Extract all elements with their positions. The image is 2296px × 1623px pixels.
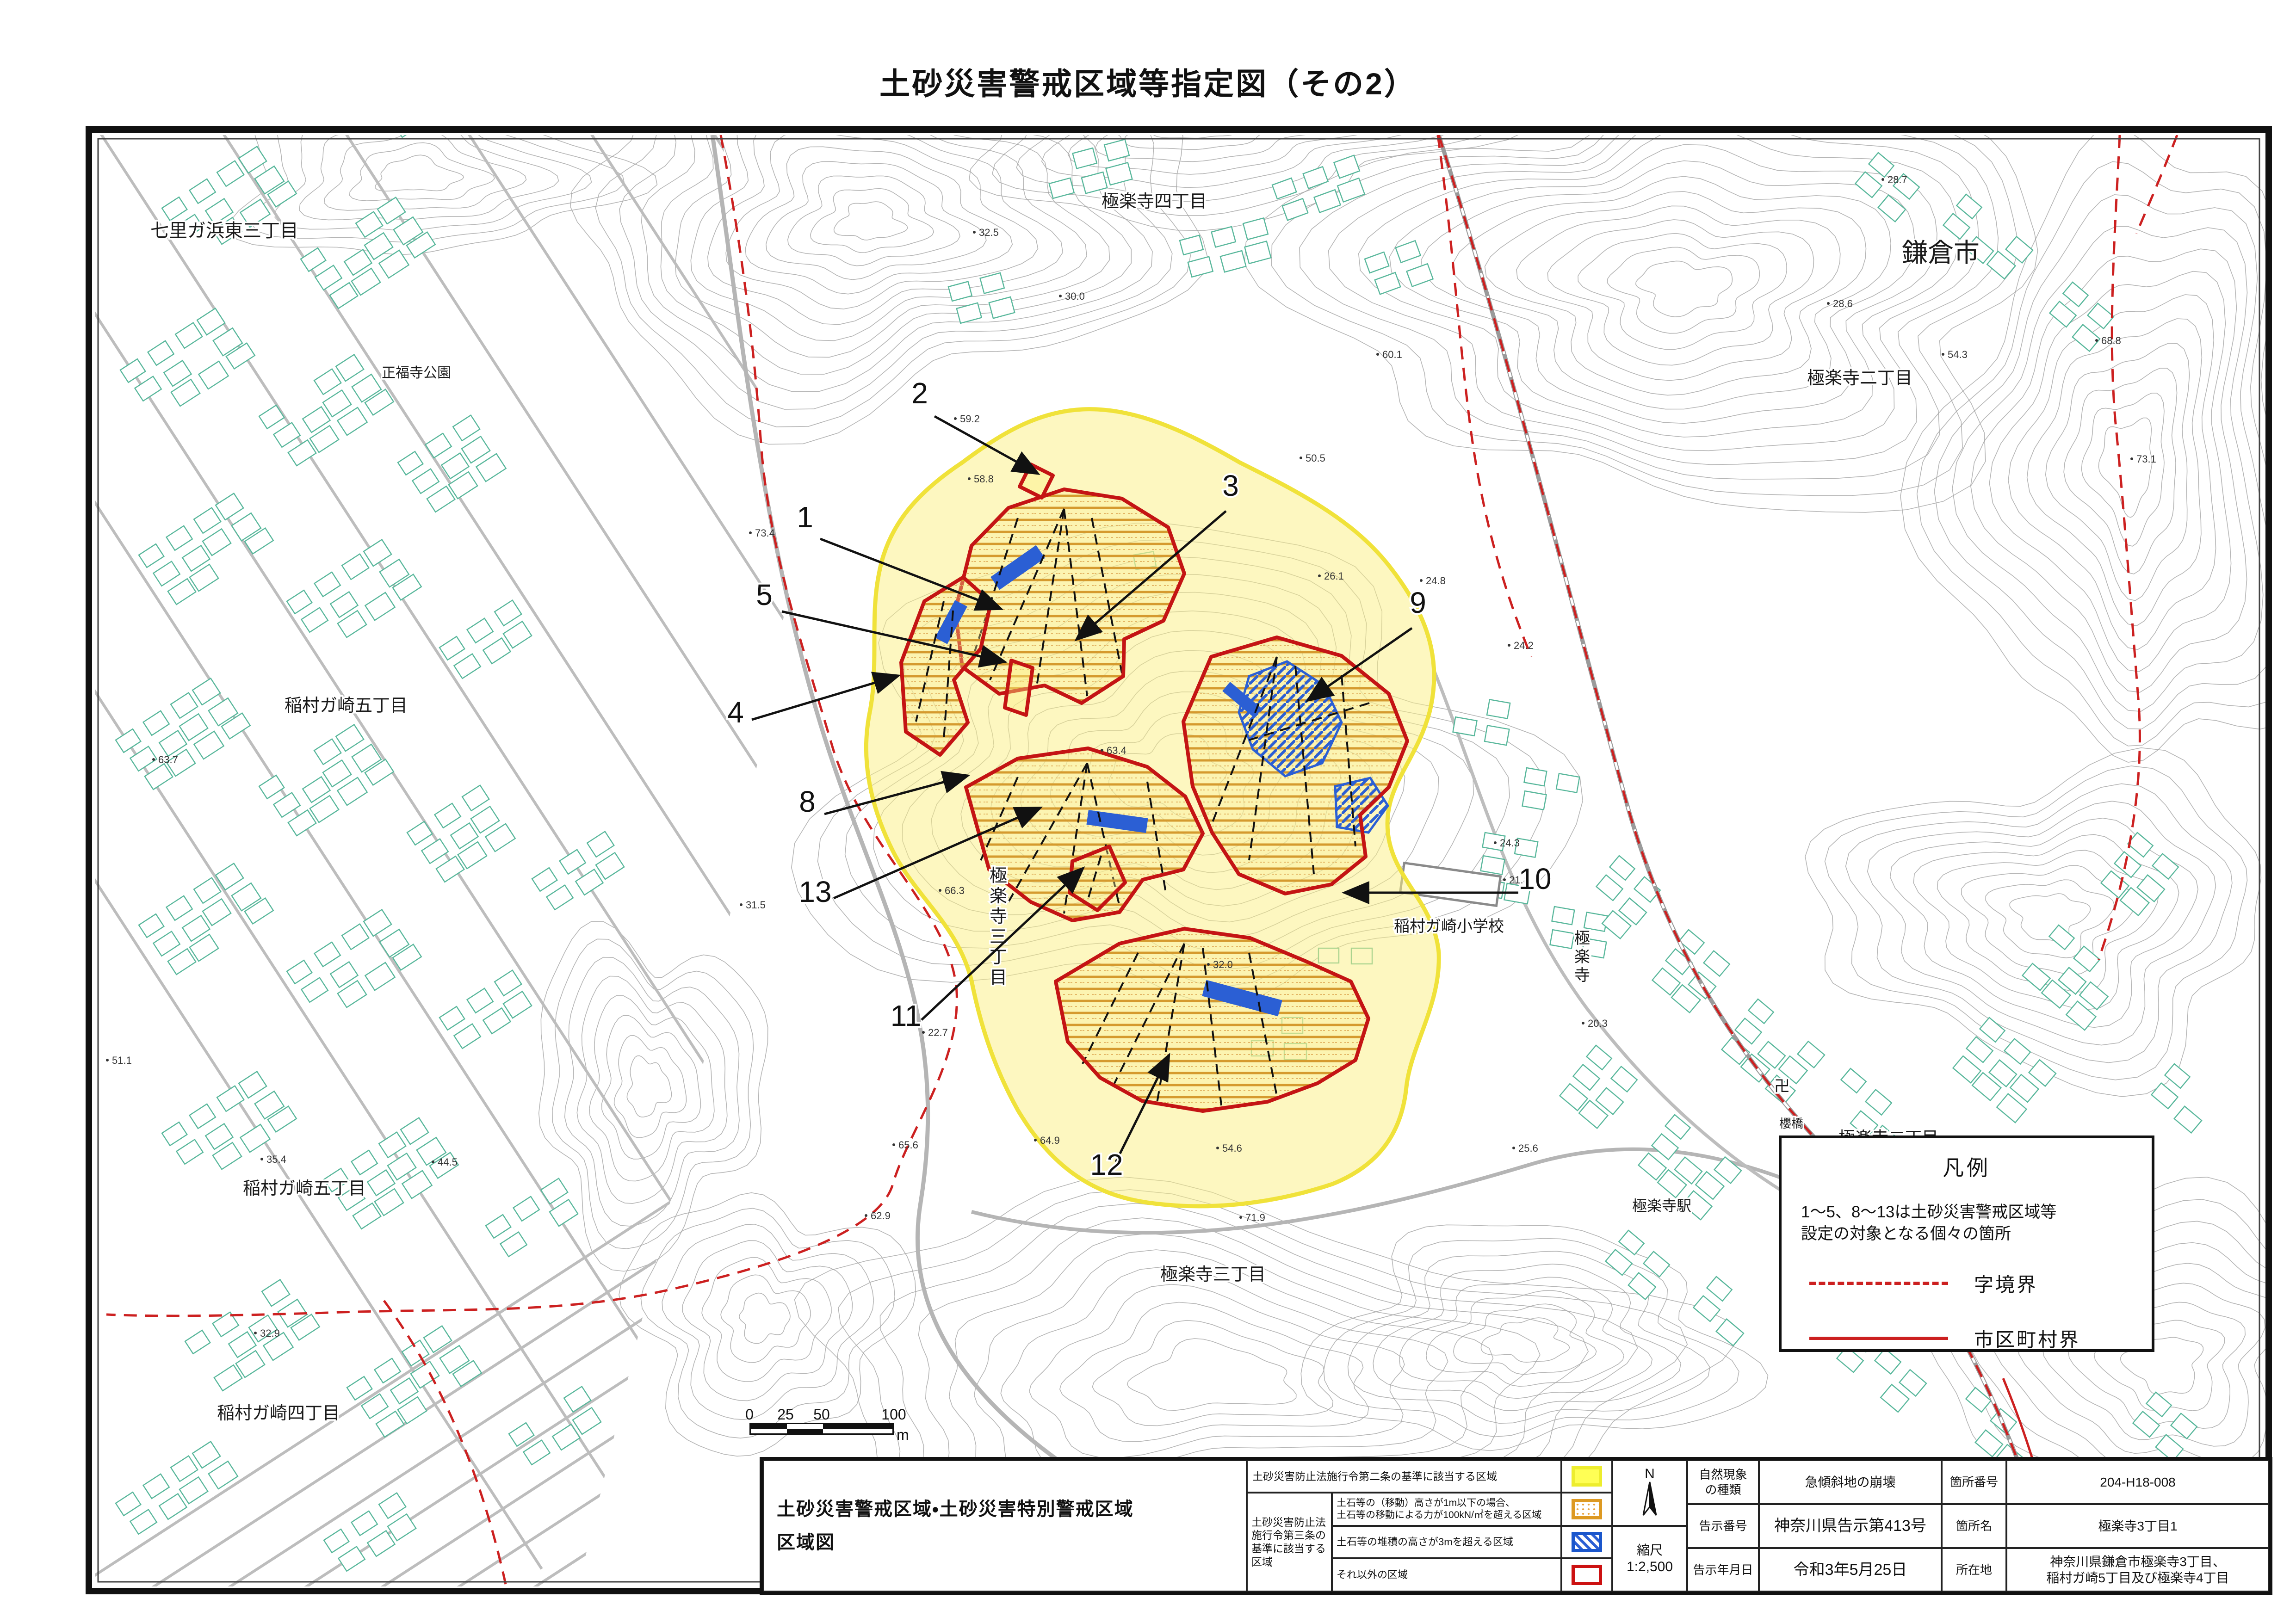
spot-elevation-dot [1494, 841, 1497, 844]
place-label: 極 [990, 866, 1007, 886]
spot-elevation-dot [1059, 295, 1062, 297]
place-label: 櫻橋 [1779, 1117, 1803, 1130]
swatch-cell-yellow [1561, 1460, 1612, 1493]
site-number-label: 11 [891, 999, 921, 1032]
spot-elevation-value: 73.1 [2136, 453, 2156, 465]
spot-elevation-dot [1216, 1147, 1219, 1149]
spot-elevation-dot [922, 1031, 925, 1034]
spot-elevation-value: 51.1 [112, 1055, 132, 1066]
scale-bar: 0 25 50 100 m [746, 1406, 940, 1457]
place-label: 稲村ガ崎五丁目 [285, 696, 408, 716]
scale-bar-unit: m [897, 1426, 909, 1444]
place-label: 鎌倉市 [1902, 238, 1980, 267]
spot-elevation-value: 24.2 [1514, 640, 1534, 651]
spot-elevation-dot [1300, 457, 1302, 459]
scale-cell: 縮尺 1:2,500 [1612, 1526, 1687, 1592]
zone-article3-label: 土砂災害防止法施行令第三条の基準に該当する区域 [1247, 1493, 1332, 1592]
spot-elevation-value: 50.5 [1306, 452, 1325, 464]
spot-elevation-dot [968, 477, 971, 480]
site-number-label: 13 [798, 875, 831, 908]
spot-elevation-value: 63.4 [1107, 745, 1126, 756]
solid-line-icon [1809, 1337, 1948, 1340]
spot-elevation-value: 68.8 [2101, 335, 2121, 346]
place-label: 楽 [990, 887, 1007, 906]
spot-elevation-value: 54.3 [1948, 349, 1968, 360]
swatch-cell-red [1561, 1558, 1612, 1592]
spot-elevation-value: 54.6 [1222, 1142, 1242, 1154]
spot-elevation-dot [106, 1059, 109, 1061]
spot-elevation-dot [749, 531, 752, 534]
detail-label: 箇所名 [1942, 1504, 2006, 1548]
spot-elevation-dot [2130, 457, 2133, 460]
place-label: 正福寺公園 [382, 365, 451, 381]
place-label: 極 [1574, 930, 1590, 947]
spot-elevation-value: 31.5 [746, 899, 766, 911]
site-number-label: 12 [1090, 1148, 1123, 1181]
spot-elevation-dot [892, 1143, 895, 1146]
site-number-label: 3 [1222, 469, 1239, 502]
spot-elevation-dot [954, 417, 957, 420]
place-label: 極楽寺四丁目 [1102, 192, 1207, 211]
place-label: 稲村ガ崎五丁目 [243, 1179, 366, 1198]
map-canvas: 59.273.458.850.526.124.824.224.321.820.3… [0, 0, 2296, 1623]
detail-value: 極楽寺3丁目1 [2006, 1504, 2269, 1548]
zone-row-other-label: それ以外の区域 [1332, 1558, 1561, 1592]
spot-elevation-value: 35.4 [266, 1154, 286, 1165]
legend-note: 1〜5、8〜13は土砂災害警戒区域等 設定の対象となる個々の箇所 [1801, 1201, 2138, 1245]
place-label: 稲村ガ崎四丁目 [217, 1404, 340, 1423]
page: { "title": "土砂災害警戒区域等指定図（その2）", "colors"… [0, 0, 2296, 1623]
zone-row-article2-label: 土砂災害防止法施行令第二条の基準に該当する区域 [1247, 1460, 1561, 1493]
swatch-cell-orange [1561, 1493, 1612, 1526]
spot-elevation-dot [1503, 878, 1506, 881]
detail-value: 204-H18-008 [2006, 1460, 2269, 1504]
place-label: 寺 [990, 907, 1007, 926]
spot-elevation-value: 59.2 [960, 413, 980, 425]
spot-elevation-dot [254, 1332, 257, 1334]
spot-elevation-value: 24.8 [1426, 575, 1446, 586]
site-number-label: 5 [756, 578, 773, 611]
north-arrow-icon: N [1634, 1465, 1666, 1521]
detail-label: 所在地 [1942, 1548, 2006, 1592]
north-arrow-cell: N [1612, 1460, 1687, 1526]
spot-elevation-dot [939, 889, 941, 892]
spot-elevation-value: 24.3 [1500, 837, 1520, 849]
swatch-cell-blue [1561, 1526, 1612, 1558]
warning-zone-swatch-icon [1572, 1466, 1602, 1487]
detail-label: 自然現象 の種類 [1687, 1460, 1759, 1504]
place-label: 楽 [1574, 948, 1590, 966]
legend-box: 凡例 1〜5、8〜13は土砂災害警戒区域等 設定の対象となる個々の箇所 字境界 … [1779, 1135, 2154, 1352]
detail-value: 神奈川県鎌倉市極楽寺3丁目、 稲村ガ崎5丁目及び極楽寺4丁目 [2006, 1548, 2269, 1592]
spot-elevation-dot [1512, 1147, 1515, 1149]
spot-elevation-value: 62.9 [871, 1210, 891, 1222]
page-title: 土砂災害警戒区域等指定図（その2） [879, 59, 1417, 104]
place-label: 極楽寺駅 [1632, 1197, 1691, 1214]
spot-elevation-dot [1318, 574, 1321, 577]
spot-elevation-dot [1207, 963, 1210, 966]
map-doc-title: 土砂災害警戒区域・土砂災害特別警戒区域 区域図 [764, 1493, 1134, 1559]
spot-elevation-dot [1827, 302, 1830, 305]
spot-elevation-dot [152, 758, 155, 761]
place-label: 目 [990, 968, 1007, 987]
place-label: 寺 [1574, 967, 1590, 984]
spot-elevation-dot [1101, 749, 1103, 752]
site-number-label: 1 [797, 500, 813, 534]
spot-elevation-value: 20.3 [1588, 1018, 1608, 1029]
spot-elevation-dot [260, 1158, 263, 1160]
place-label: 七里ガ浜東三丁目 [150, 221, 298, 241]
legend-title: 凡例 [1782, 1151, 2152, 1182]
spot-elevation-value: 28.7 [1888, 174, 1907, 185]
zone-row-deposit-label: 土石等の堆積の高さが3mを超える区域 [1332, 1526, 1561, 1558]
scale-bar-ticks: 0 25 50 100 [746, 1406, 940, 1423]
scale-bar-graphic [749, 1423, 894, 1435]
spot-elevation-dot [1881, 178, 1884, 181]
place-label: 丁 [990, 948, 1007, 967]
spot-elevation-dot [1239, 1216, 1242, 1219]
spot-elevation-value: 44.5 [438, 1156, 458, 1168]
site-number-label: 9 [1410, 586, 1426, 619]
legend-item-municipal-boundary: 市区町村界 [1809, 1324, 2152, 1352]
spot-elevation-value: 25.6 [1518, 1142, 1538, 1154]
detail-value: 神奈川県告示第413号 [1759, 1504, 1942, 1548]
detail-value: 急傾斜地の崩壊 [1759, 1460, 1942, 1504]
spot-elevation-value: 32.5 [979, 227, 999, 238]
site-number-label: 4 [727, 696, 744, 729]
spot-elevation-dot [1420, 579, 1423, 582]
spot-elevation-dot [1942, 353, 1944, 356]
spot-elevation-value: 28.6 [1833, 298, 1853, 309]
debris-force-swatch-icon [1572, 1499, 1602, 1519]
place-label: 極楽寺二丁目 [1807, 369, 1912, 388]
spot-elevation-value: 73.4 [755, 527, 775, 539]
spot-elevation-dot [2095, 339, 2098, 342]
spot-elevation-value: 32.0 [1213, 959, 1233, 970]
spot-elevation-value: 26.1 [1324, 570, 1344, 582]
spot-elevation-value: 71.9 [1245, 1212, 1265, 1223]
spot-elevation-value: 30.0 [1065, 290, 1085, 302]
legend-item-aza-boundary: 字境界 [1809, 1269, 2152, 1297]
place-label: 稲村ガ崎小学校 [1394, 918, 1504, 935]
detail-label: 箇所番号 [1942, 1460, 2006, 1504]
spot-elevation-dot [1376, 353, 1379, 356]
spot-elevation-dot [740, 903, 743, 906]
spot-elevation-value: 60.1 [1382, 349, 1402, 360]
site-number-label: 8 [799, 785, 816, 818]
dashed-line-icon [1809, 1282, 1948, 1285]
place-label: 三 [990, 927, 1007, 947]
spot-elevation-dot [1582, 1022, 1584, 1024]
spot-elevation-value: 65.6 [898, 1139, 918, 1151]
spot-elevation-dot [973, 231, 976, 234]
detail-label: 告示年月日 [1687, 1548, 1759, 1592]
spot-elevation-value: 32.9 [260, 1327, 280, 1339]
deposit-swatch-icon [1572, 1532, 1602, 1552]
site-number-label: 10 [1518, 862, 1551, 895]
detail-value: 令和3年5月25日 [1759, 1548, 1942, 1592]
zone-row-move-label: 土石等の（移動）高さが1m以下の場合、 土石等の移動による力が100kN/㎡を超… [1332, 1493, 1561, 1526]
site-number-label: 2 [911, 376, 928, 410]
spot-elevation-dot [1034, 1139, 1037, 1142]
place-label: 卍 [1774, 1078, 1790, 1095]
place-label: 極楽寺三丁目 [1160, 1265, 1266, 1284]
spot-elevation-value: 58.8 [974, 473, 994, 485]
spot-elevation-dot [1508, 644, 1510, 647]
svg-text:N: N [1645, 1466, 1655, 1481]
spot-elevation-value: 64.9 [1040, 1135, 1060, 1146]
spot-elevation-dot [865, 1214, 867, 1217]
other-zone-swatch-icon [1572, 1565, 1602, 1585]
spot-elevation-value: 22.7 [928, 1027, 948, 1038]
info-table: 土砂災害警戒区域・土砂災害特別警戒区域 区域図 土砂災害防止法施行令第二条の基準… [760, 1457, 2272, 1595]
spot-elevation-value: 63.7 [158, 754, 178, 765]
spot-elevation-dot [432, 1160, 434, 1163]
spot-elevation-value: 66.3 [945, 885, 965, 896]
detail-label: 告示番号 [1687, 1504, 1759, 1548]
